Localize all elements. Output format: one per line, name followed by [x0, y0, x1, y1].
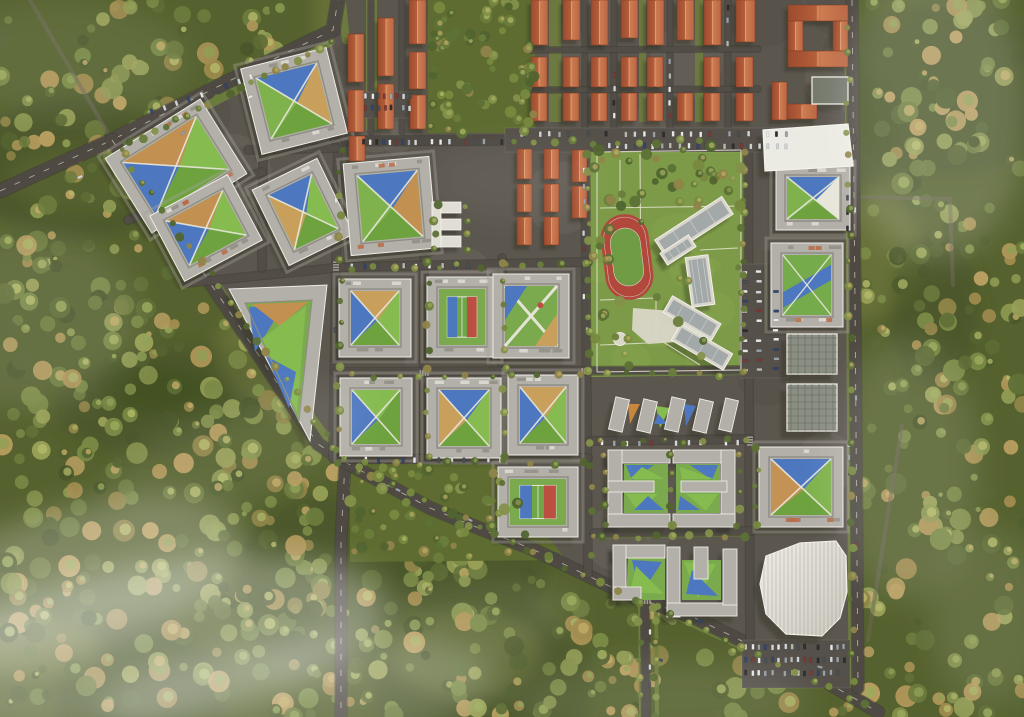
tree	[577, 371, 584, 378]
tree	[501, 302, 507, 308]
car	[817, 645, 820, 650]
tree-crown	[186, 114, 190, 118]
tree-crown	[587, 315, 590, 318]
tree-crown	[338, 343, 342, 347]
tree-crown	[503, 347, 507, 351]
car	[377, 458, 380, 463]
tree	[362, 459, 369, 466]
tree-crown	[392, 482, 396, 486]
forest-tree	[403, 572, 418, 587]
roof-detail	[549, 470, 559, 474]
car	[688, 440, 691, 445]
tree	[489, 497, 496, 504]
tree	[479, 34, 486, 41]
tree	[261, 73, 268, 80]
tree	[477, 525, 482, 530]
tree	[500, 457, 506, 463]
terracotta-roof-accent	[786, 518, 792, 522]
commercial-building	[760, 541, 847, 636]
forest-tree	[829, 708, 838, 717]
car	[756, 319, 761, 322]
tree	[175, 232, 184, 241]
forest-tree	[154, 313, 171, 330]
tree-crown	[446, 102, 451, 107]
tree	[337, 211, 345, 219]
forest-tree	[965, 305, 974, 314]
tree	[139, 134, 148, 143]
tree-crown	[587, 368, 591, 372]
tree	[587, 221, 592, 226]
tree	[422, 497, 427, 502]
forest-tree-crown	[203, 46, 214, 57]
car	[727, 5, 729, 10]
car	[736, 440, 739, 445]
tree	[163, 124, 169, 130]
tree	[204, 102, 210, 108]
tree-crown	[428, 303, 433, 308]
car	[810, 658, 813, 663]
townhouse	[647, 0, 664, 45]
roof-detail	[549, 446, 554, 450]
car	[661, 143, 664, 148]
tree	[432, 230, 439, 237]
forest-tree-crown	[181, 26, 187, 32]
tree	[478, 264, 485, 271]
tree	[668, 521, 677, 530]
tree	[434, 200, 443, 209]
roof-detail	[357, 348, 363, 352]
tree-crown	[351, 372, 354, 375]
townhouse	[788, 21, 803, 51]
car	[830, 670, 833, 675]
tree	[445, 90, 454, 99]
tree	[461, 372, 468, 379]
tree	[128, 166, 135, 173]
forest-tree	[125, 383, 136, 394]
tree-crown	[521, 99, 524, 102]
tree	[364, 529, 374, 539]
sport-structure-a	[787, 334, 837, 374]
roof-detail	[519, 349, 527, 353]
townhouse	[591, 57, 607, 87]
tree-crown	[503, 410, 507, 414]
tree	[504, 2, 512, 10]
forest-tree	[1011, 274, 1020, 283]
car	[797, 645, 800, 650]
townhouse	[591, 93, 607, 121]
terracotta-roof-accent	[809, 246, 815, 250]
forest-tree	[877, 295, 886, 304]
tree	[243, 323, 250, 330]
car	[395, 140, 398, 145]
car	[382, 139, 385, 144]
tree	[634, 617, 643, 626]
car	[797, 657, 800, 662]
tree-crown	[847, 313, 851, 317]
tree-crown	[623, 352, 627, 356]
car	[752, 644, 755, 649]
roof-detail	[384, 381, 394, 385]
car	[846, 226, 848, 231]
building-bar	[608, 514, 670, 527]
building-bar	[673, 514, 735, 527]
forest-tree	[240, 42, 254, 56]
tree-crown	[460, 129, 466, 135]
tree-crown	[693, 182, 697, 186]
tree-crown	[409, 512, 414, 517]
car	[613, 441, 616, 446]
tree	[355, 463, 363, 471]
tree	[414, 472, 422, 480]
tree	[741, 322, 746, 327]
tree	[450, 542, 456, 548]
car	[364, 93, 367, 98]
car	[364, 264, 367, 269]
tree-crown	[431, 102, 436, 107]
tree-crown	[502, 279, 505, 282]
block-g	[334, 274, 416, 362]
forest-tree	[174, 6, 191, 23]
car	[709, 131, 712, 136]
townhouse	[677, 93, 693, 121]
car	[804, 657, 807, 662]
roof-detail	[837, 169, 846, 173]
forest-tree-crown	[38, 444, 48, 454]
tree	[389, 510, 399, 520]
forest-tree	[496, 703, 507, 714]
tree-crown	[124, 151, 128, 155]
tree	[596, 242, 603, 249]
car	[539, 132, 542, 137]
tree	[588, 552, 595, 559]
townhouse	[647, 93, 663, 121]
tree	[499, 480, 505, 486]
tree	[505, 106, 517, 118]
forest-tree-crown	[318, 488, 326, 496]
forest-tree	[247, 542, 257, 552]
car	[643, 131, 646, 136]
tree-crown	[508, 17, 514, 23]
forest-tree-crown	[69, 191, 74, 196]
tree	[697, 352, 705, 360]
crosswalk-bar	[333, 264, 339, 265]
block-n	[608, 450, 670, 527]
terracotta-roof-accent	[816, 246, 822, 250]
car	[662, 132, 665, 137]
tree	[453, 114, 461, 122]
tree-crown	[849, 363, 853, 367]
tree-crown	[500, 17, 504, 21]
tree	[615, 141, 620, 146]
crosswalk-bar	[333, 267, 339, 268]
car	[643, 143, 646, 148]
car	[474, 139, 477, 144]
tree	[737, 224, 745, 232]
tree	[370, 374, 377, 381]
forest-tree-crown	[863, 280, 871, 288]
forest-tree	[27, 490, 43, 506]
tree-crown	[739, 490, 742, 493]
tree-crown	[275, 68, 279, 72]
block-r2	[766, 238, 848, 332]
roof-detail	[562, 528, 567, 532]
forest-tree	[62, 139, 70, 147]
car	[756, 291, 761, 294]
terracotta-roof-accent	[378, 243, 384, 248]
car	[756, 270, 761, 273]
car	[402, 457, 405, 462]
tree-crown	[701, 155, 705, 159]
terracotta-roof-accent	[791, 518, 797, 522]
car	[846, 195, 848, 200]
forest-tree	[14, 454, 25, 465]
tree	[616, 201, 626, 211]
forest-tree	[134, 277, 149, 292]
car	[431, 139, 434, 144]
forest-tree	[990, 277, 1000, 287]
sport-structure-b	[787, 384, 837, 431]
tree-crown	[337, 234, 341, 238]
tree-crown	[507, 549, 511, 553]
forest-tree	[985, 340, 1000, 355]
tree-crown	[491, 96, 496, 101]
tree-crown	[448, 127, 451, 130]
forest-tree-crown	[597, 650, 607, 660]
car	[803, 671, 806, 676]
tree	[450, 473, 458, 481]
car	[369, 139, 372, 144]
car	[723, 144, 726, 149]
forest-tree	[16, 429, 25, 438]
car	[378, 106, 381, 111]
tree-crown	[380, 485, 386, 491]
tree-crown	[341, 279, 344, 282]
townhouse	[517, 217, 532, 245]
forest-tree	[26, 425, 39, 438]
tree	[791, 669, 798, 676]
tree-crown	[614, 150, 619, 155]
tree	[585, 349, 594, 358]
tree	[606, 195, 616, 205]
tree	[735, 264, 741, 270]
roof-detail	[536, 446, 544, 450]
tree	[499, 259, 507, 267]
forest-tree-crown	[1007, 246, 1015, 254]
tree	[424, 518, 433, 527]
tree-crown	[395, 460, 399, 464]
car	[613, 100, 615, 105]
roof-detail	[788, 246, 793, 250]
roof-detail	[458, 280, 465, 284]
car	[668, 87, 670, 92]
tree-crown	[467, 247, 471, 251]
tree	[640, 438, 646, 444]
tree	[845, 181, 851, 187]
tree-crown	[603, 453, 606, 456]
forest-tree-crown	[257, 512, 266, 521]
tree-crown	[414, 266, 418, 270]
tree	[652, 155, 659, 162]
tree	[562, 565, 568, 571]
tree	[848, 334, 856, 342]
tree	[851, 678, 858, 685]
forest-tree-crown	[428, 587, 432, 591]
tree	[741, 149, 748, 156]
car	[401, 139, 404, 144]
roof-detail	[786, 318, 795, 322]
car	[699, 132, 702, 137]
roof-detail	[435, 381, 444, 385]
tree-crown	[422, 548, 427, 553]
tree	[513, 94, 520, 101]
tree-crown	[511, 372, 515, 376]
tree-crown	[721, 171, 726, 176]
tree	[248, 79, 253, 84]
forest-tree-crown	[271, 542, 276, 547]
roof-detail	[417, 160, 422, 164]
forest-tree	[459, 575, 471, 587]
forest-tree	[87, 163, 97, 173]
tree	[213, 94, 222, 103]
roof-detail	[553, 349, 563, 353]
townhouse	[677, 0, 694, 40]
tree-crown	[371, 509, 375, 513]
townhouse	[736, 57, 753, 87]
tree	[668, 487, 674, 493]
tree	[519, 263, 526, 270]
tree-crown	[447, 485, 452, 490]
car	[742, 329, 747, 332]
tree	[528, 71, 539, 82]
tree-crown	[438, 31, 443, 36]
car	[668, 59, 670, 64]
tree	[380, 524, 386, 530]
crosswalk-bar	[747, 444, 753, 445]
tree-crown	[467, 219, 470, 222]
tree-crown	[848, 259, 851, 262]
tree-crown	[628, 159, 632, 163]
tree-crown	[744, 183, 747, 186]
tree	[433, 552, 444, 563]
tree-crown	[571, 137, 575, 141]
roof-detail	[435, 280, 443, 284]
tree	[734, 200, 745, 211]
tree	[649, 370, 655, 376]
court-zone	[447, 297, 457, 337]
forest-tree	[197, 9, 211, 23]
forest-tree	[38, 195, 57, 214]
townhouse	[704, 0, 721, 45]
car	[756, 280, 761, 283]
tree-crown	[640, 191, 645, 196]
forest-tree	[247, 20, 258, 31]
tree	[434, 2, 446, 14]
tree-crown	[444, 507, 447, 510]
block-r1	[771, 161, 855, 235]
car	[758, 645, 761, 650]
car	[613, 86, 615, 91]
roof-detail	[556, 277, 561, 281]
forest-tree	[306, 508, 324, 526]
tree-crown	[432, 218, 437, 223]
tree-crown	[151, 190, 154, 193]
tree	[733, 523, 740, 530]
forest-tree	[958, 356, 972, 370]
car	[773, 319, 778, 322]
roof-detail	[380, 447, 386, 451]
tree-crown	[230, 301, 233, 304]
roof-detail	[530, 470, 538, 474]
block-h	[422, 272, 502, 362]
tree-crown	[286, 377, 288, 379]
car	[448, 139, 451, 144]
tree	[501, 325, 507, 331]
tree	[235, 311, 242, 318]
forest-tree-crown	[250, 370, 255, 375]
tree-crown	[851, 573, 856, 578]
tree-crown	[698, 171, 702, 175]
car	[743, 359, 748, 362]
tree	[653, 293, 661, 301]
car	[836, 644, 839, 649]
tree	[696, 137, 703, 144]
car	[830, 645, 833, 650]
tree-crown	[339, 364, 343, 368]
car	[408, 140, 411, 145]
forest-tree	[228, 350, 247, 369]
roof-detail	[787, 222, 793, 226]
tree-crown	[466, 231, 470, 235]
tree-crown	[426, 466, 432, 472]
tree	[209, 270, 215, 276]
forest-tree-crown	[914, 687, 924, 697]
tree-crown	[443, 494, 448, 499]
forest-tree	[422, 571, 434, 583]
terracotta-roof-accent	[827, 518, 833, 522]
car	[487, 457, 490, 462]
tree-crown	[198, 106, 201, 109]
forest-tree	[863, 646, 874, 657]
tree-crown	[440, 92, 444, 96]
car	[402, 94, 405, 99]
tree	[252, 337, 260, 345]
car	[737, 132, 740, 137]
car	[803, 644, 806, 649]
forest-tree-crown	[197, 350, 208, 361]
roof-detail	[804, 450, 809, 454]
tree-crown	[607, 226, 613, 232]
car	[625, 144, 628, 149]
tree-crown	[492, 375, 494, 377]
forest-tree-crown	[61, 449, 67, 455]
tree	[355, 515, 363, 523]
car	[583, 294, 585, 299]
tree-crown	[682, 147, 685, 150]
tree-crown	[436, 37, 439, 40]
car	[390, 94, 393, 99]
tree-crown	[757, 652, 761, 656]
tree	[170, 220, 176, 226]
tree	[775, 662, 781, 668]
roof-detail	[352, 165, 358, 169]
roof-detail	[353, 282, 361, 286]
forest-tree	[528, 576, 536, 584]
car	[605, 131, 608, 136]
forest-tree-crown	[133, 231, 139, 237]
car	[791, 644, 794, 649]
tree-crown	[516, 500, 522, 506]
tree	[751, 444, 759, 452]
